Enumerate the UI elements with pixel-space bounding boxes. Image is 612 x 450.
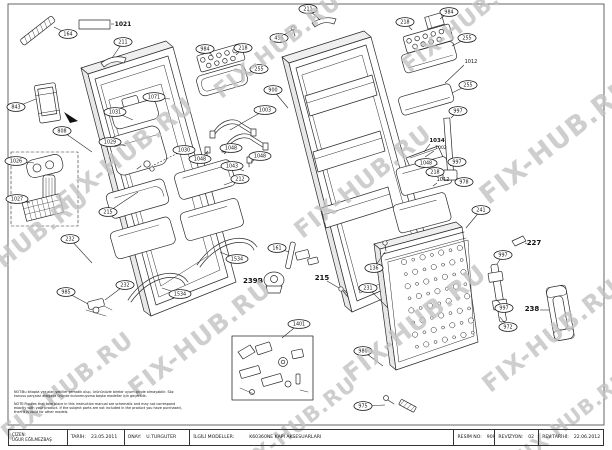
part-callout-232: 232 bbox=[61, 235, 92, 263]
svg-text:1048: 1048 bbox=[420, 161, 432, 167]
cizen-value: UĞUR EĞİLMEZBAŞ bbox=[12, 438, 52, 443]
svg-text:1071: 1071 bbox=[148, 95, 160, 101]
title-cell-modeller: İLGİLİ MODELLER: K60360NE KAPI AKSESUARL… bbox=[190, 430, 454, 445]
title-cell-revizyon: REVİZYON: 02 bbox=[495, 430, 539, 445]
hinge-kit-box bbox=[232, 336, 313, 400]
svg-text:975: 975 bbox=[358, 404, 367, 410]
svg-text:1031: 1031 bbox=[109, 110, 121, 116]
revtarih-value: 22.06.2012 bbox=[574, 435, 600, 440]
part-callout-985: 985 bbox=[57, 288, 88, 304]
part-label-227: 227 bbox=[525, 239, 541, 247]
onay-value: U.TURGUTER bbox=[146, 435, 176, 440]
svg-text:215: 215 bbox=[315, 274, 330, 282]
part-callout-241: 241 bbox=[466, 206, 490, 228]
resim-value: 909 bbox=[487, 435, 496, 440]
modeller-value: K60360NE KAPI AKSESUARLARI bbox=[249, 435, 321, 440]
svg-text:1401: 1401 bbox=[293, 322, 305, 328]
footnotes: NOT:Bu kitapta yer alan şekiller şematik… bbox=[14, 390, 184, 417]
svg-text:227: 227 bbox=[527, 239, 542, 247]
strip-part bbox=[79, 20, 110, 29]
svg-text:218: 218 bbox=[238, 46, 247, 52]
revtarih-label: REV.TARİHİ: bbox=[542, 435, 569, 440]
onay-label: ONAY: bbox=[128, 435, 142, 440]
part-callout-161: 161 bbox=[268, 244, 289, 253]
part-callout-1043: 1043 bbox=[221, 162, 244, 171]
part-label-215: 215 bbox=[315, 274, 339, 288]
part-callout-1401: 1401 bbox=[282, 320, 310, 338]
svg-text:985: 985 bbox=[61, 290, 70, 296]
svg-text:231: 231 bbox=[363, 286, 372, 292]
tarih-value: 23.05.2011 bbox=[91, 435, 117, 440]
wedge-part bbox=[512, 236, 526, 246]
part-callout-808: 808 bbox=[53, 127, 92, 152]
title-block: ÇİZEN: UĞUR EĞİLMEZBAŞ TARİH: 23.05.2011… bbox=[8, 429, 604, 446]
svg-text:997: 997 bbox=[499, 306, 508, 312]
svg-text:238: 238 bbox=[525, 305, 540, 313]
bottom-hinge bbox=[86, 298, 112, 316]
parts-diagram-page: NOT:Bu kitapta yer alan şekiller şematik… bbox=[0, 0, 612, 450]
part-callout-1003: 1003 bbox=[230, 106, 276, 130]
svg-text:232: 232 bbox=[120, 283, 129, 289]
title-cell-cizen: ÇİZEN: UĞUR EĞİLMEZBAŞ bbox=[9, 430, 68, 445]
svg-text:1534: 1534 bbox=[231, 257, 243, 263]
svg-text:1012: 1012 bbox=[437, 177, 450, 183]
svg-text:218: 218 bbox=[400, 20, 409, 26]
part-callout-255: 255 bbox=[452, 81, 477, 93]
mid-brackets bbox=[295, 249, 318, 265]
part-label-238: 238 bbox=[525, 305, 549, 313]
title-cell-rev-tarihi: REV.TARİHİ: 22.06.2012 bbox=[539, 430, 603, 445]
resim-label: RESİM NO: bbox=[457, 435, 481, 440]
part-callout-900: 900 bbox=[264, 86, 288, 108]
part-callout-997: 997 bbox=[494, 251, 512, 264]
footnote-english: NOTE:Figures that take place in this ins… bbox=[14, 402, 184, 415]
title-cell-resim-no: RESİM NO: 909 bbox=[454, 430, 495, 445]
part-callout-1027: 1027 bbox=[6, 195, 30, 204]
part-callout-997: 997 bbox=[449, 107, 467, 118]
shelf-cover-2 bbox=[398, 83, 455, 116]
svg-text:1002: 1002 bbox=[435, 145, 447, 151]
title-cell-onay: ONAY: U.TURGUTER bbox=[125, 430, 191, 445]
part-label-1021: 1021 bbox=[111, 21, 131, 28]
svg-text:1048: 1048 bbox=[194, 157, 206, 163]
svg-text:136: 136 bbox=[369, 266, 378, 272]
svg-text:1026: 1026 bbox=[10, 159, 22, 165]
svg-text:1030: 1030 bbox=[178, 148, 190, 154]
svg-text:255: 255 bbox=[463, 83, 472, 89]
svg-text:218: 218 bbox=[430, 170, 439, 176]
svg-text:161: 161 bbox=[272, 246, 281, 252]
part-callout-997: 997 bbox=[448, 158, 466, 167]
svg-text:1048: 1048 bbox=[254, 154, 266, 160]
svg-text:843: 843 bbox=[11, 105, 20, 111]
part-callout-978: 978 bbox=[455, 178, 473, 187]
svg-text:211: 211 bbox=[118, 40, 127, 46]
svg-text:984: 984 bbox=[200, 47, 209, 53]
svg-text:997: 997 bbox=[453, 109, 462, 115]
svg-text:808: 808 bbox=[57, 129, 66, 135]
handle-rail bbox=[487, 263, 510, 322]
part-callout-218: 218 bbox=[426, 168, 444, 177]
svg-text:1021: 1021 bbox=[115, 21, 132, 28]
part-callout-164: 164 bbox=[54, 27, 77, 38]
svg-text:978: 978 bbox=[459, 180, 468, 186]
modeller-label: İLGİLİ MODELLER: bbox=[193, 435, 234, 440]
svg-text:900: 900 bbox=[268, 88, 277, 94]
footnote-turkish: NOT:Bu kitapta yer alan şekiller şematik… bbox=[14, 390, 184, 399]
svg-text:1012: 1012 bbox=[465, 59, 478, 65]
svg-text:215: 215 bbox=[103, 210, 112, 216]
svg-text:972: 972 bbox=[503, 325, 512, 331]
part-callout-218: 218 bbox=[396, 18, 414, 30]
svg-text:1027: 1027 bbox=[11, 197, 23, 203]
exploded-diagram: 1642118438081026102723298523215341534161… bbox=[0, 0, 612, 450]
svg-text:1048: 1048 bbox=[225, 146, 237, 152]
svg-text:241: 241 bbox=[476, 208, 485, 214]
svg-text:212: 212 bbox=[235, 177, 244, 183]
title-cell-tarih: TARİH: 23.05.2011 bbox=[68, 430, 125, 445]
svg-text:164: 164 bbox=[63, 32, 72, 38]
svg-text:232: 232 bbox=[65, 237, 74, 243]
part-callout-1048: 1048 bbox=[220, 144, 242, 154]
revizyon-value: 02 bbox=[528, 435, 534, 440]
part-callout-972: 972 bbox=[499, 317, 517, 331]
part-callout-1048: 1048 bbox=[415, 159, 437, 168]
pin-rod bbox=[285, 242, 296, 269]
revizyon-label: REVİZYON: bbox=[498, 435, 523, 440]
display-panel bbox=[34, 83, 61, 124]
arrow-marker bbox=[64, 112, 78, 123]
handle-rod bbox=[20, 16, 56, 46]
svg-text:1534: 1534 bbox=[174, 292, 186, 298]
svg-text:997: 997 bbox=[452, 160, 461, 166]
svg-text:1043: 1043 bbox=[226, 164, 238, 170]
svg-text:1003: 1003 bbox=[259, 108, 271, 114]
watermark-text: FIX-HUB.RU bbox=[474, 72, 612, 211]
part-label-1012: 1012 bbox=[445, 59, 477, 83]
svg-text:997: 997 bbox=[498, 253, 507, 259]
tarih-label: TARİH: bbox=[71, 435, 86, 440]
part-callout-843: 843 bbox=[7, 99, 36, 111]
part-callout-975: 975 bbox=[354, 402, 385, 411]
